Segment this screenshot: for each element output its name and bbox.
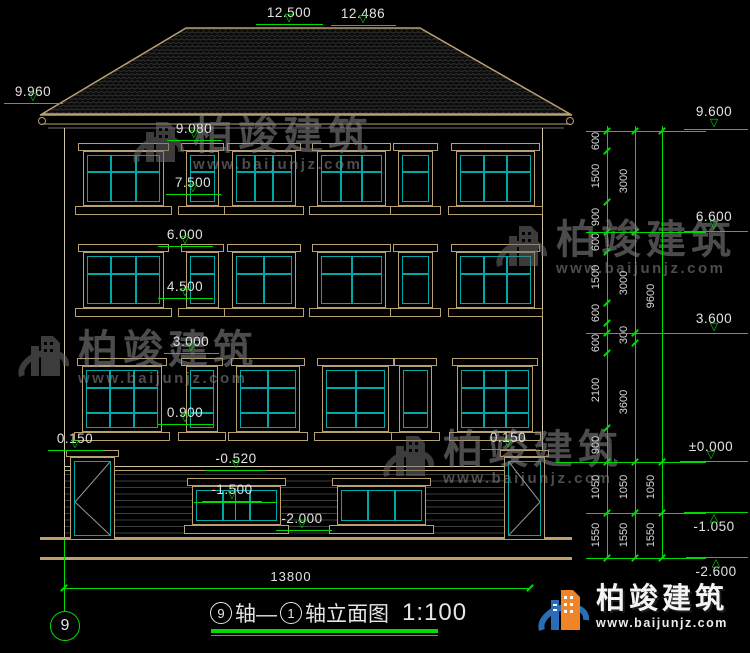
elevation-marker-triangle: ▽ — [189, 183, 197, 194]
dimension-rule — [586, 232, 706, 233]
elevation-marker-line — [684, 129, 748, 130]
elevation-marker-line — [256, 24, 323, 25]
door — [70, 457, 115, 540]
elevation-marker-triangle: ▽ — [710, 322, 718, 333]
title-underline-thick — [211, 629, 438, 633]
elevation-marker-triangle: ▽ — [181, 235, 189, 246]
dimension-chain-value: 300 — [618, 326, 630, 344]
elevation-marker-line — [331, 25, 396, 26]
window — [232, 151, 296, 206]
elevation-marker-line — [158, 246, 213, 247]
window — [399, 366, 432, 432]
dimension-chain-value: 1050 — [590, 475, 602, 499]
elevation-marker-triangle: ▽ — [504, 438, 512, 449]
dimension-rule — [586, 513, 706, 514]
dimension-chain-value: 900 — [590, 436, 602, 454]
floor-band — [64, 466, 543, 467]
dimension-rule — [586, 131, 706, 132]
window — [456, 252, 535, 308]
elevation-marker-triangle: ▽ — [181, 287, 189, 298]
dimension-chain-value: 1550 — [618, 523, 630, 547]
basement-window-dim-vline — [235, 488, 236, 521]
elevation-marker-line — [206, 470, 266, 471]
dimension-rule — [586, 558, 706, 559]
window — [83, 151, 164, 206]
ground-line-lower — [40, 557, 572, 560]
window — [457, 366, 533, 432]
window — [232, 252, 296, 308]
brand-logo-icon — [538, 584, 590, 642]
window — [83, 252, 164, 308]
dimension-chain-value: 1550 — [645, 523, 657, 547]
dimension-chain-value: 1050 — [645, 475, 657, 499]
brand-logo: 柏竣建筑 www.baijunjz.com — [538, 584, 728, 642]
title-scale: 1:100 — [402, 599, 467, 627]
elevation-marker-line — [164, 353, 219, 354]
elevation-marker-line — [481, 449, 536, 450]
elevation-drawing: 柏竣建筑 www.baijunjz.com 柏竣建筑 www.baijunjz.… — [0, 0, 750, 653]
door-leaf — [508, 461, 541, 536]
dimension-chain-value: 600 — [590, 132, 602, 150]
window — [82, 366, 162, 432]
title-seg2: 轴立面图 — [305, 598, 389, 628]
dimension-chain-value: 1050 — [618, 475, 630, 499]
window — [236, 366, 300, 432]
dimension-chain-value: 3600 — [618, 390, 630, 414]
title-axis-to-bubble: 1 — [280, 602, 302, 624]
elevation-marker-line — [166, 194, 221, 195]
ground-line-upper — [40, 537, 572, 540]
dimension-chain-value: 600 — [590, 334, 602, 352]
dimension-chain-value: 3000 — [618, 169, 630, 193]
dimension-rule — [556, 462, 706, 463]
door — [504, 457, 545, 540]
window — [398, 252, 433, 308]
elevation-marker-triangle: ▽ — [187, 342, 195, 353]
dimension-chain-value: 900 — [590, 208, 602, 226]
floor-band-lower — [64, 470, 543, 471]
dimension-chain-value: 2100 — [590, 378, 602, 402]
dimension-chain-value: 9600 — [645, 284, 657, 308]
dimension-chain-value: 1500 — [590, 164, 602, 188]
dimension-chain-value: 3000 — [618, 271, 630, 295]
dimension-rule — [586, 333, 706, 334]
window — [398, 151, 433, 206]
elevation-marker-triangle: △ — [710, 513, 718, 524]
drawing-title: 9 轴— 1 轴立面图 1:100 — [210, 598, 467, 628]
elevation-marker-triangle: ▽ — [298, 519, 306, 530]
axis-bubble: 9 — [50, 611, 80, 641]
elevation-marker-triangle: ▽ — [707, 450, 715, 461]
elevation-marker-triangle: ▽ — [232, 459, 240, 470]
elevation-marker-triangle: ▽ — [29, 92, 37, 103]
dimension-chain-line — [607, 126, 608, 558]
overall-width-tick — [526, 584, 534, 592]
dimension-chain-value: 1550 — [590, 523, 602, 547]
elevation-marker-line — [4, 103, 63, 104]
elevation-marker-triangle: △ — [712, 558, 720, 569]
brand-url: www.baijunjz.com — [596, 616, 728, 630]
elevation-marker-triangle: ▽ — [71, 439, 79, 450]
basement-window — [337, 486, 426, 525]
title-seg1: 轴— — [235, 598, 277, 628]
door-leaf — [74, 461, 111, 536]
watermark-url: www.baijunjz.com — [556, 260, 725, 277]
elevation-marker-line — [48, 450, 103, 451]
watermark-logo-icon — [18, 330, 70, 388]
elevation-marker-triangle: ▽ — [359, 14, 367, 25]
overall-width-line — [64, 588, 530, 589]
window — [317, 252, 386, 308]
elevation-marker-triangle: ▽ — [190, 129, 198, 140]
axis-line — [64, 540, 65, 612]
elevation-marker-triangle: ▽ — [181, 413, 189, 424]
overall-width-dimension: 13800 — [270, 569, 311, 584]
window — [322, 366, 389, 432]
roof — [0, 0, 750, 145]
elevation-marker-triangle: ▽ — [710, 220, 718, 231]
elevation-marker-line — [167, 140, 222, 141]
elevation-marker-triangle: ▽ — [710, 118, 718, 129]
elevation-marker-triangle: ▽ — [285, 13, 293, 24]
elevation-marker-line — [276, 530, 332, 531]
axis-label: 9 — [61, 617, 70, 635]
window — [317, 151, 386, 206]
title-axis-from-bubble: 9 — [210, 602, 232, 624]
dimension-chain-value: 600 — [590, 233, 602, 251]
title-underline-thin — [211, 635, 438, 636]
elevation-marker-line — [158, 298, 213, 299]
elevation-marker-line — [158, 424, 213, 425]
dimension-chain-value: 1500 — [590, 265, 602, 289]
dimension-chain-line — [662, 126, 663, 558]
dimension-chain-value: 600 — [590, 304, 602, 322]
brand-name: 柏竣建筑 — [596, 584, 728, 615]
window — [186, 366, 218, 432]
window — [456, 151, 535, 206]
